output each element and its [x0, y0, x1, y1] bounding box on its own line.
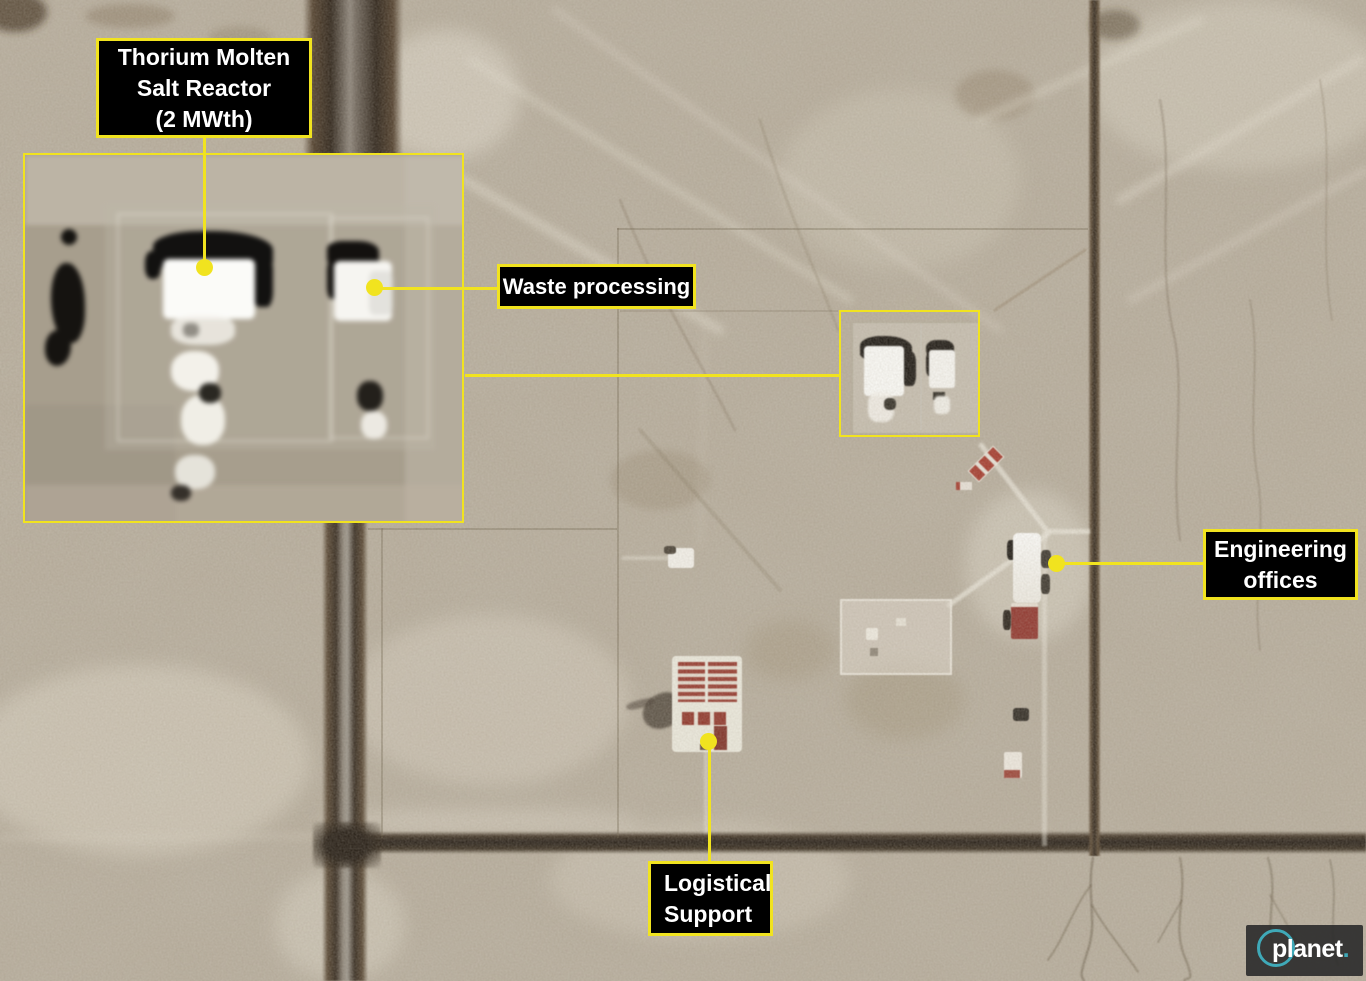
- waste-marker-dot: [366, 279, 383, 296]
- red-roof-building: [1011, 603, 1038, 639]
- fence-line: [617, 228, 619, 838]
- road-horizontal-south: [328, 831, 1366, 854]
- pad-structure: [870, 648, 878, 656]
- building-shadow: [1041, 574, 1050, 594]
- container-rows: [678, 662, 705, 702]
- planet-logo-text: planet.: [1272, 935, 1349, 964]
- inset-connector-line: [465, 374, 839, 377]
- container-rows: [682, 712, 726, 725]
- inset-building-shadow: [145, 251, 161, 279]
- engineering-offices-building: [1013, 533, 1041, 603]
- inset-dark-feature: [357, 381, 383, 411]
- inset-terrain: [25, 485, 464, 523]
- inset-dark-feature: [171, 485, 191, 501]
- reactor-label: Thorium Molten Salt Reactor (2 MWth): [96, 38, 312, 138]
- planet-logo: planet.: [1246, 925, 1363, 976]
- waste-processing-label: Waste processing: [497, 264, 696, 309]
- inset-dark-feature: [183, 323, 199, 337]
- waste-processing-label-text: Waste processing: [503, 271, 690, 302]
- engineering-marker-dot: [1048, 555, 1065, 572]
- inset-building-shadow: [253, 255, 273, 307]
- red-structure: [956, 482, 972, 490]
- reactor-label-text: Thorium Molten Salt Reactor (2 MWth): [118, 42, 290, 135]
- logistical-support-label-text: Logistical Support: [664, 868, 771, 930]
- logistics-callout-line: [708, 748, 711, 866]
- planet-brand-dot: .: [1343, 935, 1349, 963]
- access-track: [1048, 529, 1090, 534]
- road-junction: [313, 822, 381, 868]
- building-shadow: [1003, 610, 1011, 630]
- pad-structure: [896, 618, 906, 626]
- vehicle: [1013, 708, 1029, 721]
- inset-dark-feature: [45, 330, 71, 366]
- reactor-callout-line: [203, 137, 206, 268]
- reactor-site-highlight-box: [839, 310, 980, 437]
- inset-dark-feature: [61, 229, 77, 245]
- waste-callout-line: [375, 287, 498, 290]
- inset-dark-feature: [199, 383, 221, 403]
- reactor-marker-dot: [196, 259, 213, 276]
- road-vertical-west-top: [303, 0, 403, 162]
- pad-structure: [866, 628, 878, 640]
- fence-line: [381, 528, 383, 838]
- inset-outbuilding: [181, 395, 225, 445]
- engineering-callout-line: [1058, 562, 1203, 565]
- inset-outbuilding: [361, 411, 387, 439]
- fence-line: [617, 228, 1088, 230]
- inset-reactor-building: [171, 315, 235, 345]
- container-rows: [708, 662, 737, 702]
- logistics-marker-dot: [700, 733, 717, 750]
- engineering-offices-label-text: Engineering offices: [1214, 534, 1347, 596]
- building-shadow: [664, 546, 676, 554]
- fence-line: [368, 528, 617, 530]
- road-vertical-east: [1088, 0, 1101, 856]
- access-track: [622, 556, 670, 560]
- engineering-offices-label: Engineering offices: [1203, 529, 1358, 600]
- planet-brand-text: planet: [1272, 935, 1343, 963]
- inset-zoom-panel: [23, 153, 464, 523]
- annotated-satellite-image: Thorium Molten Salt Reactor (2 MWth) Was…: [0, 0, 1366, 981]
- fence-line: [620, 310, 838, 312]
- inset-satellite-view: [25, 155, 462, 521]
- logistical-support-label: Logistical Support: [648, 861, 773, 936]
- small-structure: [1004, 770, 1020, 778]
- storage-pad: [840, 599, 952, 675]
- inset-outbuilding: [175, 455, 215, 489]
